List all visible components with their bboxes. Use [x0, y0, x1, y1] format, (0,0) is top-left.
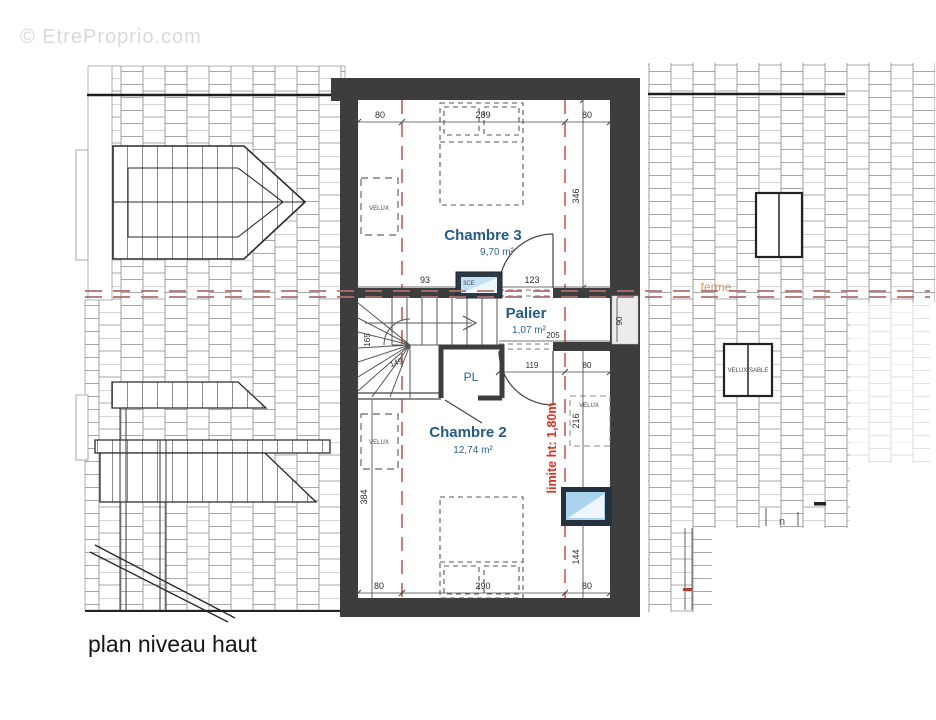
- window-code-label: 3CE: [463, 281, 475, 287]
- room-chambre2-area: 12,74 m²: [453, 445, 493, 456]
- mid-wall-window: 3CE: [456, 272, 502, 298]
- dim-205: 205: [546, 331, 560, 340]
- note-n: n: [779, 516, 785, 528]
- dim-119: 119: [526, 361, 539, 370]
- wall-top: [331, 78, 640, 101]
- room-chambre2-name: Chambre 2: [429, 424, 507, 441]
- right-roof-hatch-low: [648, 528, 712, 612]
- wall-bottom: [340, 596, 640, 617]
- height-limit-label: limite ht: 1,80m: [545, 403, 559, 494]
- left-edge-stub-top: [76, 150, 88, 260]
- dim-top-289: 289: [475, 110, 490, 120]
- dim-bottom-80r: 80: [582, 581, 592, 591]
- dim-93: 93: [420, 275, 430, 285]
- dim-bottom-290: 290: [475, 581, 490, 591]
- right-velux-window: [756, 193, 802, 257]
- room-chambre3-area: 9,70 m²: [480, 247, 515, 258]
- wall-left: [340, 78, 358, 617]
- dim-346: 346: [571, 188, 581, 203]
- dim-216: 216: [571, 413, 581, 428]
- right-roof-hatch-fade: [850, 303, 930, 463]
- dim-123: 123: [524, 275, 539, 285]
- dim-384: 384: [359, 489, 369, 504]
- velux-chambre3-label: VELUX: [369, 206, 389, 212]
- floorplan-page: © EtreProprio.com: [0, 0, 936, 720]
- dim-bottom-80l: 80: [374, 581, 384, 591]
- left-roof: [76, 66, 345, 622]
- dim-top-80l: 80: [375, 110, 385, 120]
- velux-chambre2-right-label: VELUX: [579, 403, 599, 409]
- central-building: 3CE 165 149 PL: [331, 78, 640, 617]
- left-edge-stub-bottom: [76, 395, 88, 460]
- dim-144: 144: [571, 549, 581, 564]
- dim-90: 90: [615, 316, 624, 325]
- room-palier-name: Palier: [506, 305, 547, 322]
- velux-sable-label: VELUX SABLE: [728, 368, 769, 374]
- skylight-window-right: [561, 487, 612, 526]
- floorplan-drawing: © EtreProprio.com: [0, 0, 936, 720]
- closet-label: PL: [464, 370, 479, 384]
- dim-80-palier: 80: [583, 361, 592, 370]
- dim-stairs-165: 165: [363, 333, 372, 347]
- right-roof: VELUX SABLE ferme n: [648, 63, 935, 612]
- left-gutter-line: [88, 66, 112, 300]
- wall-right: [610, 78, 640, 617]
- right-roof-hatch-top: [648, 63, 935, 303]
- room-palier-area: 1,07 m²: [512, 325, 547, 336]
- dim-top-80r: 80: [582, 110, 592, 120]
- right-velux-sable-window: VELUX SABLE: [724, 344, 772, 396]
- room-chambre3-name: Chambre 3: [444, 227, 522, 244]
- plan-title: plan niveau haut: [88, 631, 257, 657]
- wall-palier-chambre2: [553, 342, 610, 351]
- right-roof-hatch-mid: [648, 303, 850, 528]
- watermark: © EtreProprio.com: [20, 26, 202, 48]
